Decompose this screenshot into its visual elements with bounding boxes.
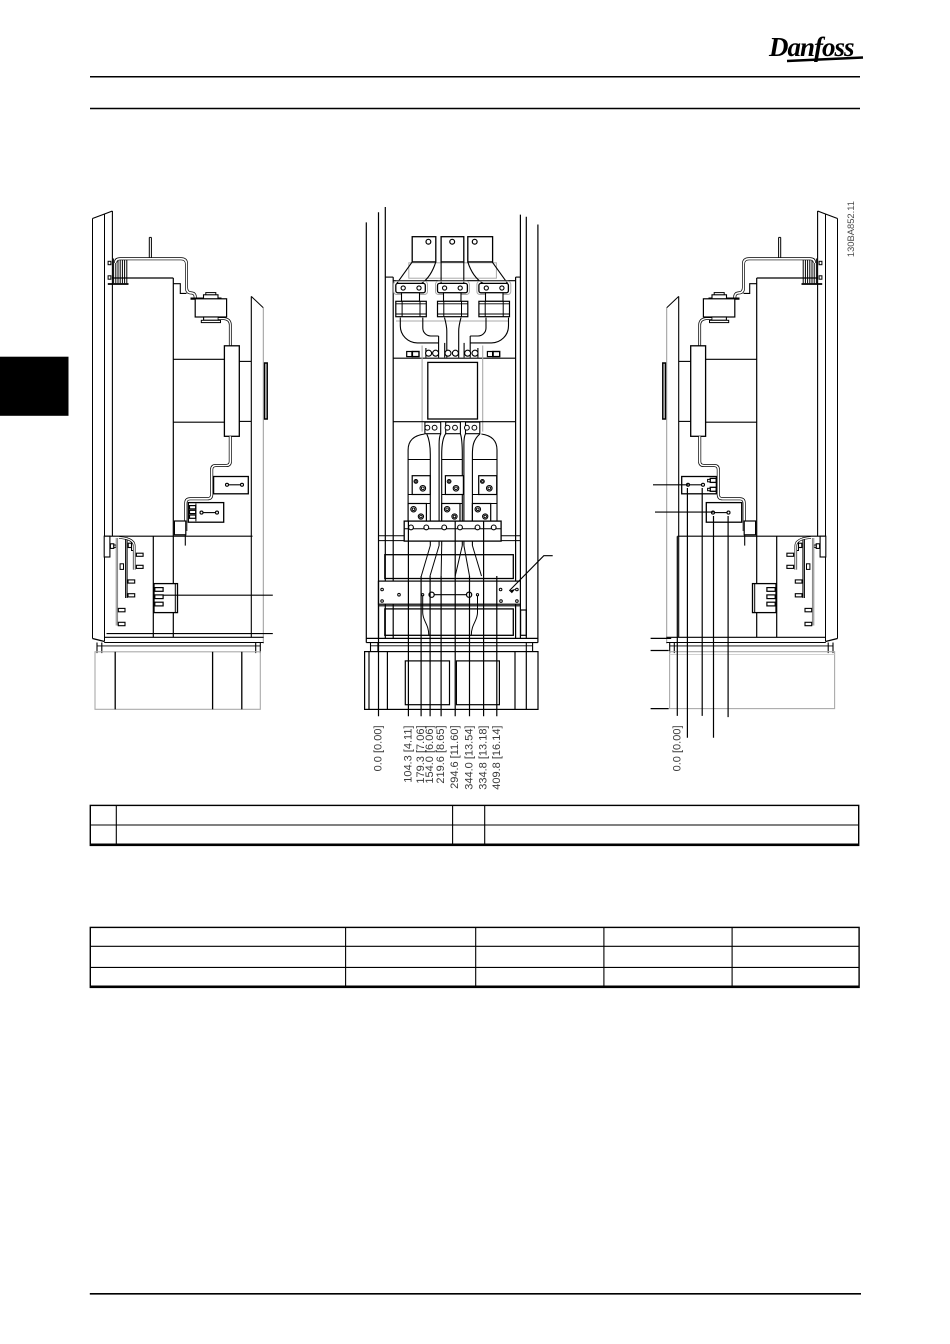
svg-text:409.8 [16.14]: 409.8 [16.14]	[491, 726, 503, 790]
svg-text:0.0 [0.00]: 0.0 [0.00]	[671, 726, 683, 772]
svg-text:294.6 [11.60]: 294.6 [11.60]	[449, 726, 461, 789]
svg-text:344.0 [13.54]: 344.0 [13.54]	[464, 726, 476, 790]
svg-text:219.6 [8.65]: 219.6 [8.65]	[435, 726, 447, 784]
svg-text:0.0 [0.00]: 0.0 [0.00]	[373, 726, 385, 772]
svg-text:104.3 [4.11]: 104.3 [4.11]	[402, 726, 414, 783]
svg-text:130BA852.11: 130BA852.11	[845, 201, 856, 257]
svg-text:334.8 [13.18]: 334.8 [13.18]	[478, 726, 490, 790]
